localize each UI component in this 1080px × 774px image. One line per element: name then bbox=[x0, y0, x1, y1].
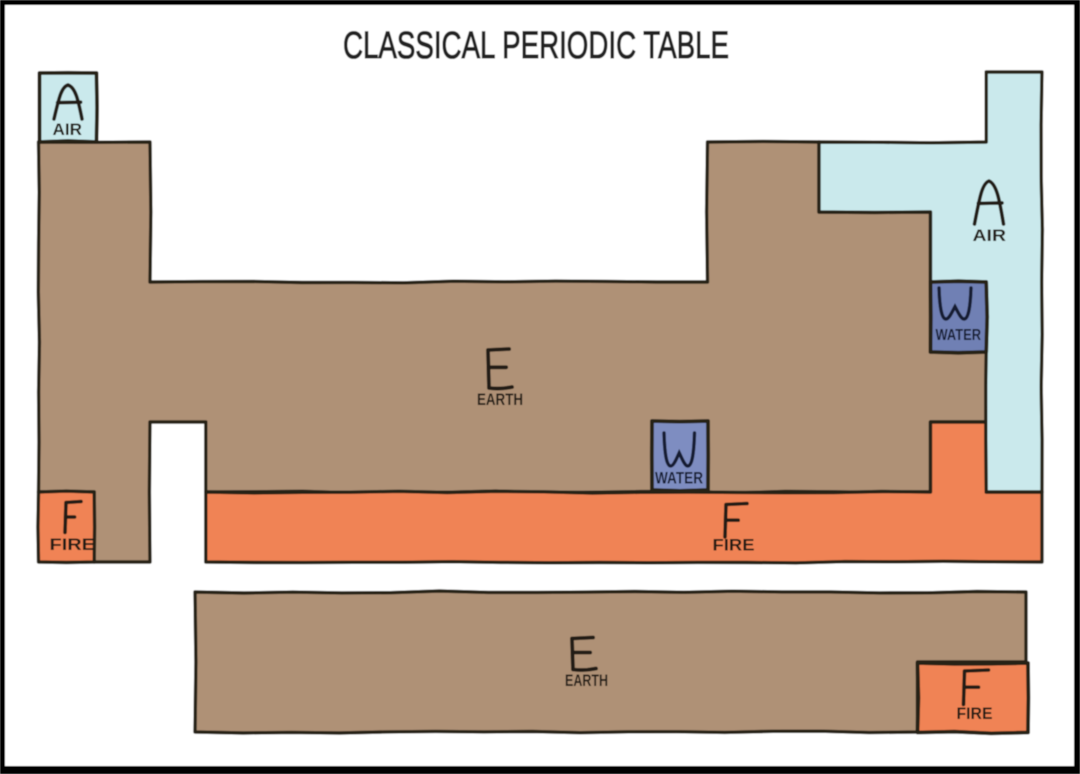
svg-text:FIRE: FIRE bbox=[957, 705, 993, 723]
svg-text:WATER: WATER bbox=[655, 470, 703, 488]
svg-text:AIR: AIR bbox=[973, 226, 1007, 245]
svg-text:FIRE: FIRE bbox=[713, 537, 755, 555]
svg-text:EARTH: EARTH bbox=[565, 672, 608, 690]
svg-text:WATER: WATER bbox=[936, 327, 982, 344]
svg-text:FIRE: FIRE bbox=[50, 535, 96, 554]
svg-text:CLASSICAL PERIODIC TABLE: CLASSICAL PERIODIC TABLE bbox=[343, 25, 729, 67]
svg-text:EARTH: EARTH bbox=[477, 391, 523, 409]
svg-text:AIR: AIR bbox=[53, 121, 83, 139]
